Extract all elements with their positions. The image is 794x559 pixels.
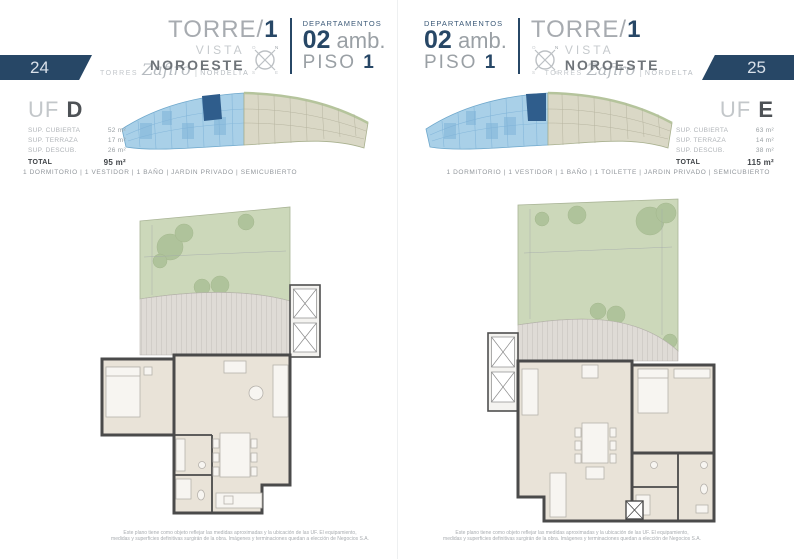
total-value: 115 m² [747,157,774,169]
piso-label: PISO [424,52,477,73]
svg-text:N: N [555,45,558,50]
vista-label: VISTA [150,44,245,57]
page-number: 25 [747,58,766,78]
disclaimer-line: medidas y superficies definitivas surgir… [92,536,388,542]
features-line: 1 DORMITORIO | 1 VESTIDOR | 1 BAÑO | 1 T… [447,169,770,176]
surface-row: SUP. TERRAZA 17 m² [28,136,126,146]
total-value: 95 m² [104,157,126,169]
page-number: 24 [30,58,49,78]
unit-summary: UF D SUP. CUBIERTA 52 m² SUP. TERRAZA 17… [28,98,126,169]
uf-label: UF [720,97,751,122]
uf-letter: E [758,97,774,122]
brand-torres: Torres [100,70,138,77]
stair-core [290,285,320,357]
total-row: TOTAL 95 m² [28,157,126,169]
svg-text:E: E [275,70,278,75]
surface-label: SUP. DESCUB. [28,146,77,156]
surface-label: SUP. CUBIERTA [676,126,728,136]
unit-summary: UF E SUP. CUBIERTA 63 m² SUP. TERRAZA 14… [676,98,774,169]
piso-label: PISO [303,52,356,73]
page-number-ribbon: 24 [0,55,92,80]
orientation-label: NOROESTE [565,57,660,74]
dept-unit: amb. [458,28,507,53]
surface-value: 17 m² [108,136,126,146]
surface-value: 52 m² [108,126,126,136]
surface-value: 14 m² [756,136,774,146]
surface-value: 63 m² [756,126,774,136]
svg-text:E: E [555,70,558,75]
floor-plan [96,195,332,525]
svg-text:O: O [252,45,256,50]
torre-number: 1 [627,16,641,43]
features-line: 1 DORMITORIO | 1 VESTIDOR | 1 BAÑO | JAR… [23,169,297,176]
highlighted-unit [526,93,546,121]
site-plan-map [116,83,374,159]
surface-label: SUP. DESCUB. [676,146,725,156]
total-label: TOTAL [676,157,700,169]
orientation-label: NOROESTE [150,57,245,74]
dept-unit: amb. [337,28,386,53]
torre-label: TORRE/ [531,16,627,43]
disclaimer: Este plano tiene como objeto reflejar la… [92,530,388,542]
highlighted-unit [202,94,222,121]
compass-icon: N O E S [531,43,559,75]
disclaimer-line: medidas y superficies definitivas surgir… [424,536,720,542]
surface-label: SUP. TERRAZA [676,136,726,146]
total-row: TOTAL 115 m² [676,157,774,169]
dept-number: 02 [303,26,331,54]
site-plan-map [420,83,678,159]
uf-label: UF [28,97,59,122]
surface-row: SUP. CUBIERTA 63 m² [676,126,774,136]
svg-text:S: S [532,70,535,75]
svg-text:O: O [532,45,536,50]
stair-core [488,333,518,411]
shaft [626,501,643,519]
surface-value: 26 m² [108,146,126,156]
svg-text:N: N [275,45,278,50]
header-title: TORRE/1 VISTA NOROESTE N O E S [150,17,385,75]
surface-row: SUP. CUBIERTA 52 m² [28,126,126,136]
total-label: TOTAL [28,157,52,169]
deck-terrace [140,293,290,356]
compass-icon: N O E S [251,43,279,75]
torre-number: 1 [264,16,278,43]
floor-plan [482,195,722,527]
header-divider [518,18,520,74]
surface-label: SUP. TERRAZA [28,136,78,146]
dept-number: 02 [424,26,452,54]
surface-value: 38 m² [756,146,774,156]
vista-label: VISTA [565,44,660,57]
disclaimer: Este plano tiene como objeto reflejar la… [424,530,720,542]
svg-text:S: S [252,70,255,75]
piso-number: 1 [363,52,376,73]
surface-label: SUP. CUBIERTA [28,126,80,136]
torre-label: TORRE/ [168,16,264,43]
header-title: DEPARTAMENTOS 02 amb. PISO 1 TORRE/1 N O… [424,17,659,75]
piso-number: 1 [485,52,498,73]
surface-row: SUP. DESCUB. 38 m² [676,146,774,156]
uf-letter: D [66,97,83,122]
brochure-spread: 24 Torres Zafiro | NORDELTA TORRE/1 VIST… [0,0,794,559]
surface-row: SUP. TERRAZA 14 m² [676,136,774,146]
header-divider [290,18,292,74]
page-gutter [397,0,398,559]
surface-row: SUP. DESCUB. 26 m² [28,146,126,156]
page-number-ribbon: 25 [702,55,794,80]
